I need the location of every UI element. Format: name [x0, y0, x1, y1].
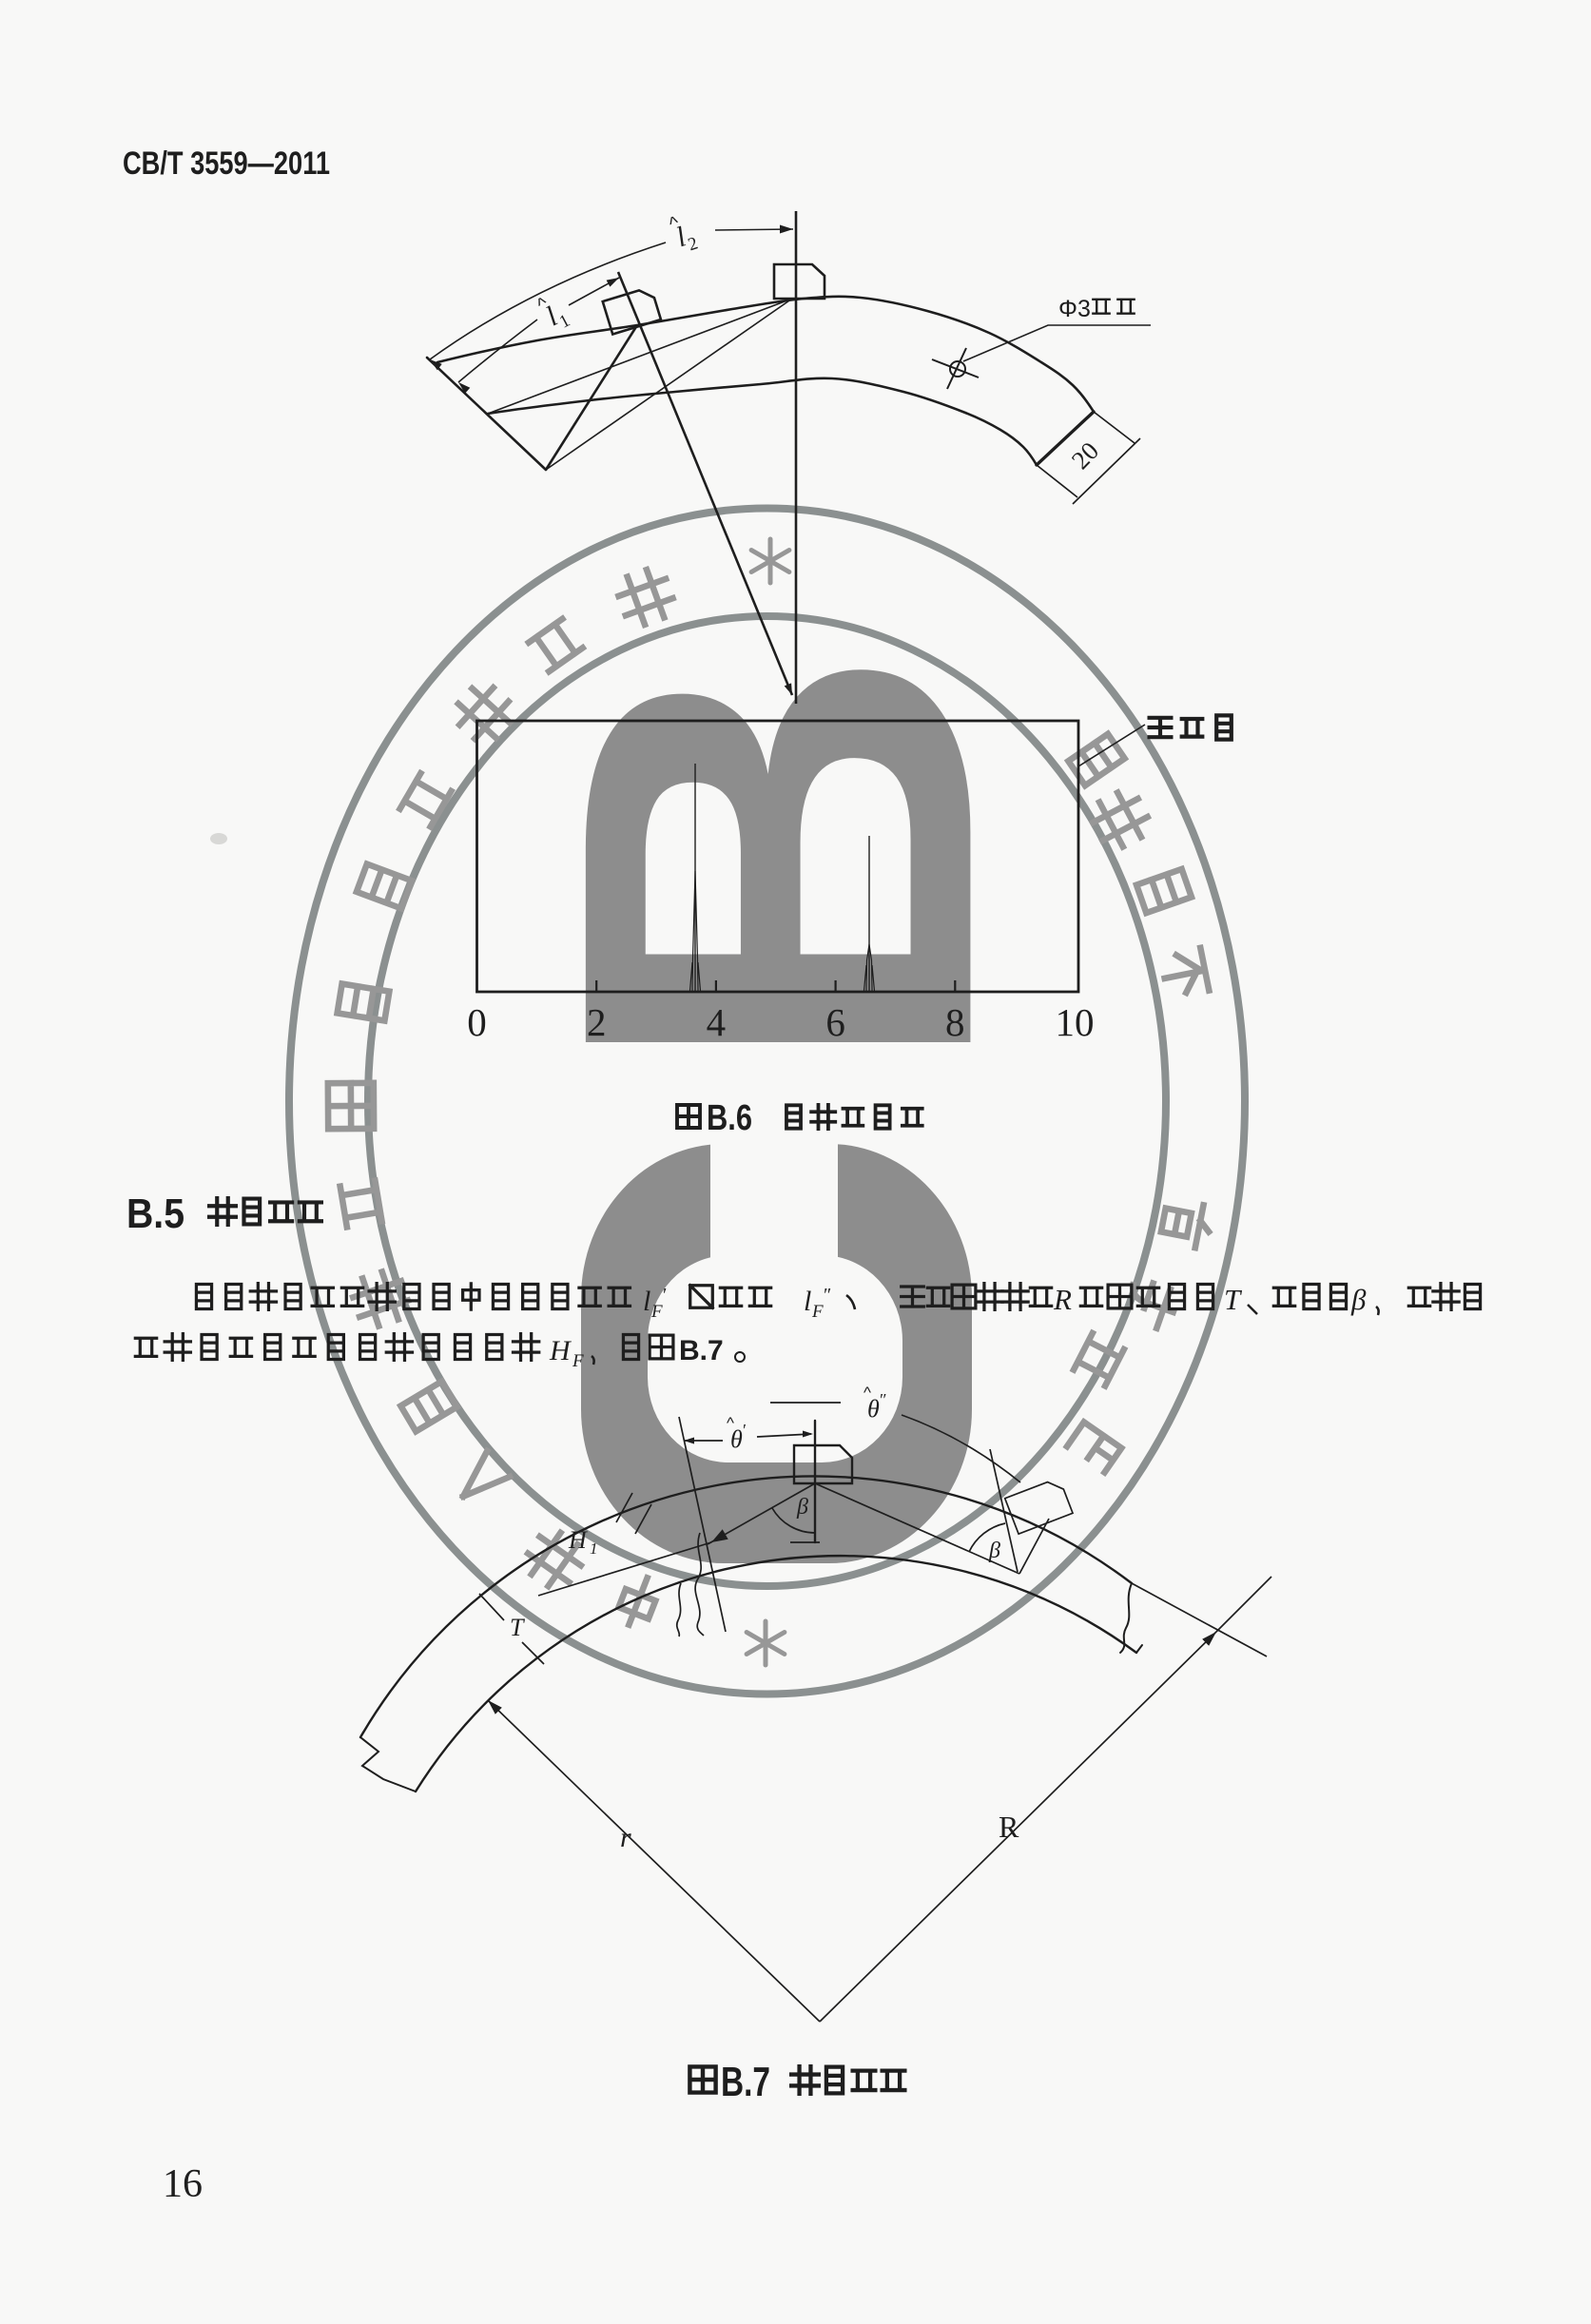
svg-text:CB/T 3559—2011: CB/T 3559—2011	[123, 145, 330, 182]
svg-text:4: 4	[707, 1000, 727, 1044]
svg-text:F: F	[811, 1302, 824, 1322]
svg-text:β: β	[796, 1495, 808, 1520]
svg-text:^: ^	[863, 1384, 871, 1402]
svg-text:l: l	[804, 1286, 811, 1317]
svg-text:H: H	[568, 1526, 588, 1554]
svg-text:F: F	[650, 1302, 663, 1322]
svg-text:Φ3: Φ3	[1058, 296, 1091, 322]
svg-text:H: H	[549, 1335, 572, 1366]
svg-text:B.6: B.6	[707, 1098, 752, 1138]
svg-text:10: 10	[1056, 1000, 1095, 1044]
svg-text:B.7: B.7	[721, 2059, 770, 2105]
svg-text:″: ″	[824, 1285, 831, 1306]
svg-text:B.5: B.5	[126, 1191, 184, 1237]
svg-text:T: T	[1224, 1283, 1243, 1316]
svg-text:r: r	[620, 1822, 631, 1853]
svg-text:0: 0	[467, 1000, 487, 1044]
svg-text:1: 1	[590, 1540, 598, 1558]
svg-text:R: R	[1053, 1283, 1072, 1316]
svg-text:B.7: B.7	[679, 1335, 724, 1366]
svg-text:″: ″	[880, 1390, 887, 1409]
svg-text:B: B	[466, 642, 1090, 1083]
svg-text:β: β	[1350, 1283, 1367, 1316]
svg-text:8: 8	[945, 1000, 965, 1044]
svg-text:R: R	[999, 1810, 1019, 1844]
svg-text:′: ′	[743, 1421, 747, 1440]
svg-text:β: β	[988, 1539, 1000, 1563]
svg-text:2: 2	[587, 1000, 607, 1044]
svg-text:6: 6	[825, 1000, 845, 1044]
svg-text:T: T	[510, 1614, 525, 1641]
svg-text:^: ^	[727, 1414, 734, 1432]
svg-text:′: ′	[663, 1285, 667, 1306]
svg-text:l: l	[643, 1286, 650, 1317]
svg-text:F: F	[572, 1351, 584, 1371]
svg-text:16: 16	[163, 2162, 203, 2206]
